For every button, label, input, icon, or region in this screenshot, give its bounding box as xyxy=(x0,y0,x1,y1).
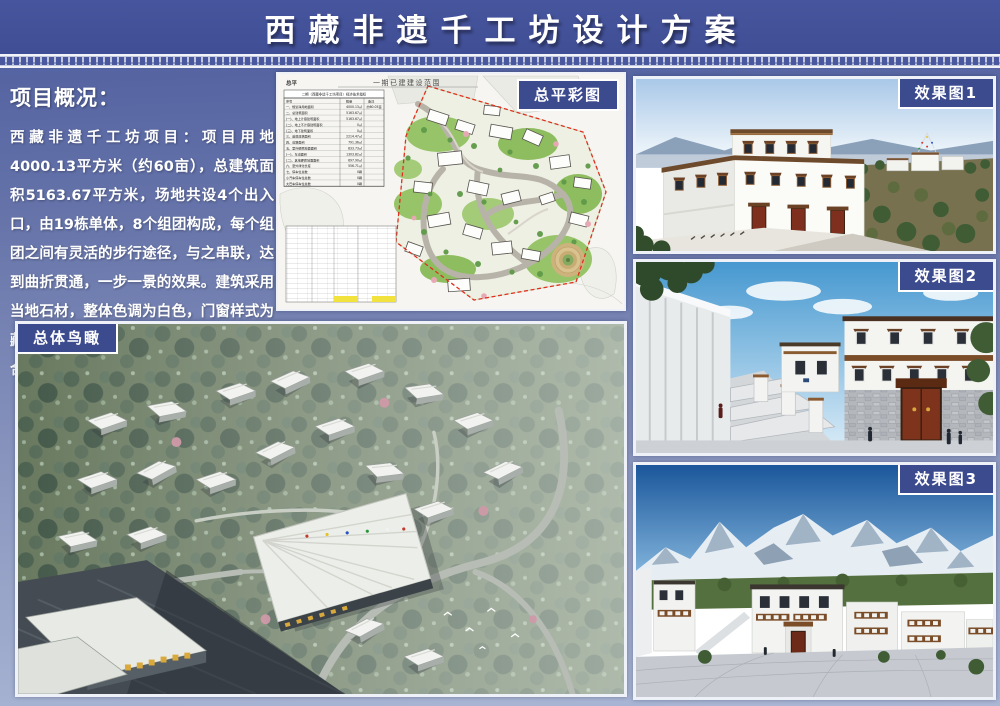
aerial-label: 总体鸟瞰 xyxy=(18,324,118,354)
plan-table-cell: 2214.47㎡ xyxy=(346,134,363,139)
render1-panel: 效果图1 xyxy=(633,76,996,254)
render2-panel: 效果图2 xyxy=(633,259,996,456)
poster-title: 西藏非遗千工坊设计方案 xyxy=(252,5,749,50)
render3-image xyxy=(636,465,993,697)
meander-border xyxy=(0,54,1000,68)
plan-table-header-2: 备注 xyxy=(368,98,374,103)
plan-unit-table xyxy=(286,226,396,302)
plan-corner-mark: 总平 xyxy=(286,79,298,87)
plan-table-cell: 5163.67㎡ xyxy=(346,110,363,115)
plan-table-cell: 五、室外硬质地面面积 xyxy=(286,146,317,151)
aerial-image xyxy=(18,324,624,694)
render1-label: 效果图1 xyxy=(898,79,993,109)
plan-table-header-1: 数量 xyxy=(346,98,352,103)
plan-table-cell: 697.90㎡ xyxy=(348,157,363,162)
plan-table-cell: 大巴车停车位总数 xyxy=(286,181,311,186)
plan-drawing-title: 一期已建建设范围 xyxy=(373,78,441,87)
plan-table-cell: (一)、地上计容建筑面积 xyxy=(286,116,319,121)
plan-table-cell: 4000.13㎡ xyxy=(346,104,363,109)
plan-table-cell: 791.36㎡ xyxy=(348,140,363,145)
plan-table-title: 二期（西藏非遗千工坊项目）经济技术指标 xyxy=(302,92,367,97)
plan-table-cell: 833.73㎡ xyxy=(348,146,363,151)
plan-table-cell: 0辆 xyxy=(357,169,362,174)
plan-table-cell: (二)、其他硬质地面面积 xyxy=(286,157,319,162)
plan-table-cell: 5163.67㎡ xyxy=(346,116,363,121)
plan-table-cell: 约60.05亩 xyxy=(367,104,382,109)
design-poster: 西藏非遗千工坊设计方案 项目概况： 西藏非遗千工坊项目：项目用地4000.13平… xyxy=(0,0,1000,706)
plan-table-cell: 一、规划净用地面积 xyxy=(286,104,314,109)
render3-panel: 效果图3 xyxy=(633,462,996,700)
plan-table-cell: 七、停车位总数 xyxy=(286,169,308,174)
aerial-panel: 总体鸟瞰 xyxy=(15,321,627,697)
site-plan-label: 总平彩图 xyxy=(517,79,619,111)
plan-table-cell: 二、总建筑面积 xyxy=(286,110,308,115)
plan-table-cell: 六、室外绿化长度 xyxy=(286,163,311,168)
render2-label: 效果图2 xyxy=(898,262,993,292)
site-plan-panel: 总平 一期已建建设范围 二期（西藏非遗千工坊项目）经济技术指标 序号 数量 备注… xyxy=(276,72,626,311)
plan-table-header-0: 序号 xyxy=(286,98,292,103)
plan-table-cell: 四、道路面积 xyxy=(286,140,305,145)
plan-table-cell: 小汽车停车位总数 xyxy=(286,175,311,180)
plan-table-cell: 0辆 xyxy=(357,175,362,180)
plan-economic-table: 二期（西藏非遗千工坊项目）经济技术指标 序号 数量 备注 一、规划净用地面积40… xyxy=(284,90,384,187)
plan-table-cell: 0辆 xyxy=(357,181,362,186)
meander-pattern xyxy=(0,57,1000,65)
title-bar: 西藏非遗千工坊设计方案 xyxy=(0,0,1000,54)
render3-label: 效果图3 xyxy=(898,465,993,495)
plan-table-cell: 556.71㎡ xyxy=(348,163,363,168)
plan-table-cell: 三、基底建筑面积 xyxy=(286,134,311,139)
plan-table-cell: (一)、车道面积 xyxy=(286,151,307,156)
overview-heading: 项目概况： xyxy=(10,82,274,112)
plan-table-cell: (三)、地下建筑面积 xyxy=(286,128,313,133)
plan-table-cell: (二)、地上不计容建筑面积 xyxy=(286,122,322,127)
plan-table-cell: 1303.82㎡ xyxy=(346,151,363,156)
